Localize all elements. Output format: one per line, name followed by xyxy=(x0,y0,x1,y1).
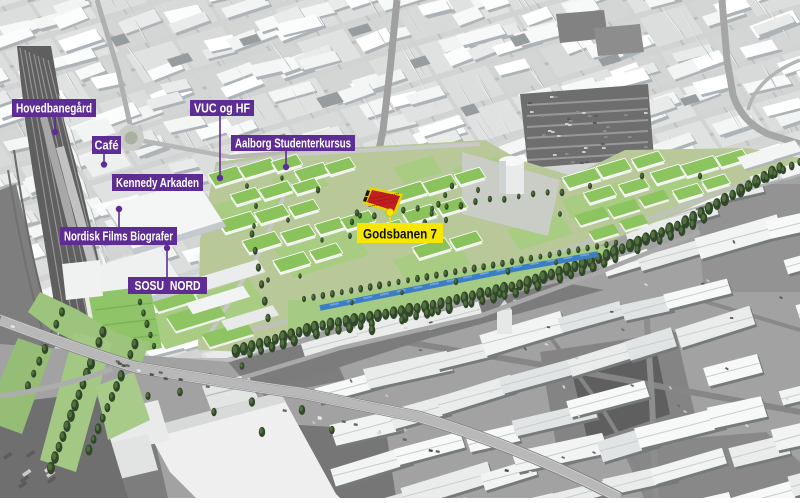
svg-text:Godsbanen 7: Godsbanen 7 xyxy=(363,226,437,242)
svg-text:Hovedbanegård: Hovedbanegård xyxy=(16,101,92,116)
svg-text:Café: Café xyxy=(95,138,119,153)
svg-text:Nordisk Films Biografer: Nordisk Films Biografer xyxy=(64,229,173,244)
svg-text:Aalborg Studenterkursus: Aalborg Studenterkursus xyxy=(235,137,351,151)
svg-text:SOSU NORD: SOSU NORD xyxy=(135,278,201,293)
svg-text:Kennedy Arkaden: Kennedy Arkaden xyxy=(116,175,199,190)
svg-text:VUC og HF: VUC og HF xyxy=(194,102,250,116)
